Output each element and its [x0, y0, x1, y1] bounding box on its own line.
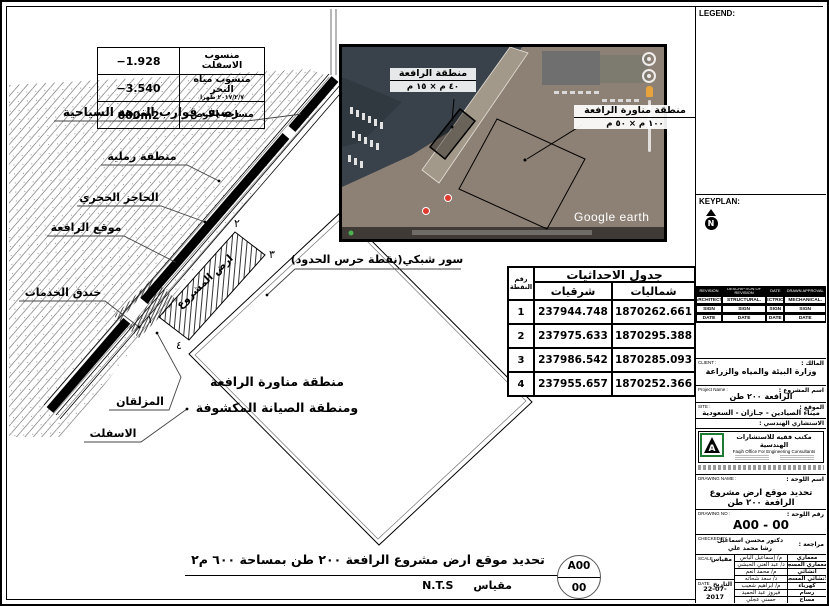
- sheet-number-bubble: A00 00: [557, 555, 601, 599]
- scale-date-column: SCALE مقياس DATE التاريخ 22-07-2017: [696, 555, 735, 603]
- leader-dot: [176, 262, 179, 265]
- discipline-cell: STRUCTURAL.: [722, 296, 766, 304]
- easting-header: شرقيات: [534, 282, 612, 300]
- staff-name: م/ إسماعيل الياس: [735, 555, 787, 562]
- coordinates-table: رقم النقطة جدول الاحداثيات شرقيات شماليا…: [507, 266, 696, 397]
- maneuver-area-label-2: ومنطقة الصيانة المكشوفة: [196, 400, 358, 415]
- move-control[interactable]: [642, 69, 656, 83]
- look-control[interactable]: [642, 52, 656, 66]
- staff-role: معماري: [788, 555, 826, 562]
- staff-name: د/ عبد الغني الحبشي: [735, 562, 787, 569]
- asphalt-label: الاسفلت: [90, 427, 137, 440]
- date-cell: DATE: [696, 314, 722, 322]
- northing-value: 1870252.366: [612, 372, 695, 396]
- revision-notes-box: [696, 323, 826, 359]
- revision-col-header: DRAWN APPROVAL: [784, 287, 826, 295]
- revision-col-header: DATE: [766, 287, 784, 295]
- corner-point-1: ١: [147, 313, 153, 326]
- table-row: −3.540 منسوب مياه البحر ٢٠١٧/٢/٧ ظهرا: [98, 75, 265, 102]
- easting-value: 237975.633: [534, 324, 612, 348]
- maneuver-area-callout-dims: ١٠٠ م × ٥٠ م: [574, 118, 696, 129]
- client-label-en: CLIENT :: [698, 360, 716, 365]
- discipline-cell: ELECTRICAL.: [766, 296, 784, 304]
- legend-box: LEGEND:: [696, 7, 826, 195]
- staff-role: انشائي: [788, 569, 826, 576]
- scale-label: مقياس: [473, 579, 512, 592]
- drawing-no-section: DRAWING NO : رقم اللوحة : A00 - 00: [696, 510, 826, 535]
- scale-value: N.T.S: [422, 579, 453, 592]
- keyplan-box: KEYPLAN: N: [696, 195, 826, 288]
- land-area-value: 600m2: [98, 102, 180, 129]
- leader-dot: [218, 180, 221, 183]
- staff-name: م/ ابراهيم شعيب: [735, 583, 787, 590]
- consultant-name-ar: مكتب فقيه للاستشارات الهندسية: [725, 432, 823, 449]
- point-number: 4: [508, 372, 534, 396]
- staff-name: فيروز عبد الحميد: [735, 590, 787, 597]
- discipline-cell: MECHANICAL.: [784, 296, 826, 304]
- consultant-section: A مكتب فقيه للاستشارات الهندسية Faqih Of…: [696, 429, 826, 475]
- leader-dot: [204, 221, 207, 224]
- sign-cell: SIGN: [784, 305, 826, 313]
- crane-area-callout-dims: ٤٠ م × ١٥ م: [390, 81, 476, 92]
- maneuver-area-callout: منطقة مناورة الرافعة ١٠٠ م × ٥٠ م: [574, 105, 696, 129]
- point-number: 3: [508, 348, 534, 372]
- status-bar-text-blur: [412, 230, 592, 235]
- leader-dot: [156, 332, 159, 335]
- leader-dot: [301, 113, 304, 116]
- drawing-sheet: ارض المشروع ٢ ٣ ١ ٤ منطقة مناورة الرافعة…: [0, 0, 829, 606]
- client-section: CLIENT : المالك : وزارة البيئة والمياه و…: [696, 359, 826, 386]
- consultant-logo-box: A مكتب فقيه للاستشارات الهندسية Faqih Of…: [698, 431, 824, 463]
- leader-dot: [138, 326, 141, 329]
- consultant-label-section: الاستشاري الهندسي :: [696, 419, 826, 429]
- scale-label-ar: مقياس: [711, 556, 732, 563]
- drawing-name-label-ar: اسم اللوحة :: [786, 476, 824, 483]
- leader-dot: [266, 294, 269, 297]
- drawing-name-section: DRAWING NAME : اسم اللوحة : تحديد موقع ا…: [696, 475, 826, 510]
- staff-role: مساح: [788, 597, 826, 603]
- checker-name: دكتور محسن اسماعيل: [696, 537, 804, 545]
- title-block-panel: LEGEND: KEYPLAN: N REVISION DESCRIPTION …: [695, 7, 826, 603]
- band-gap: [286, 129, 292, 136]
- sign-cell: SIGN: [722, 305, 766, 313]
- date-cell: DATE: [784, 314, 826, 322]
- table-row: 600m2 مساحة الارض: [98, 102, 265, 129]
- site-value: ميناء الصيادين - جـازان - السعودية: [696, 409, 826, 417]
- asphalt-level-value: −1.928: [98, 48, 180, 75]
- date-cell: DATE التاريخ 22-07-2017: [696, 580, 734, 604]
- fence-label: سور شبكي(نقطة حرس الحدود): [291, 253, 463, 266]
- placemark-icon[interactable]: [444, 194, 452, 202]
- staff-role: المعماري المسجل: [788, 562, 826, 569]
- date-cell: DATE: [766, 314, 784, 322]
- corner-point-3: ٣: [269, 248, 275, 261]
- slipway-label: المزلقان: [116, 395, 164, 408]
- project-name: الرافعة ٢٠٠ طن: [696, 392, 826, 401]
- google-earth-watermark: Google earth: [574, 210, 649, 224]
- maneuver-area-callout-title: منطقة مناورة الرافعة: [574, 105, 696, 118]
- keyplan-label: KEYPLAN:: [696, 195, 826, 206]
- point-header-line2: النقطة: [510, 284, 532, 291]
- discipline-cell: ARCHITECT.: [696, 296, 722, 304]
- stone-barrier-label: الحاجز الحجري: [79, 191, 158, 204]
- northing-header: شماليات: [612, 282, 695, 300]
- staff-roles-column: معماري المعماري المسجل انشائي الانشائي ا…: [787, 555, 826, 603]
- client-label-ar: المالك :: [801, 360, 824, 367]
- sign-row: SIGN SIGN SIGN SIGN: [696, 305, 826, 314]
- sign-cell: SIGN: [696, 305, 722, 313]
- staff-names-column: م/ إسماعيل الياس د/ عبد الغني الحبشي م/ …: [735, 555, 787, 603]
- leader-dot: [186, 408, 189, 411]
- site-section: SITE : الموقع : ميناء الصيادين - جـازان …: [696, 403, 826, 419]
- checked-by-section: CHECKED BY مراجعة : دكتور محسن اسماعيل ر…: [696, 535, 826, 555]
- staff-section: SCALE مقياس DATE التاريخ 22-07-2017 م/ إ…: [696, 555, 826, 603]
- corner-point-4: ٤: [176, 339, 182, 352]
- coords-table-title: جدول الاحداثيات: [534, 267, 695, 282]
- satellite-image: Google earth: [339, 44, 667, 242]
- sandy-area-label: منطقة رملية: [107, 150, 176, 163]
- services-trench-label: خندق الخدمات: [25, 286, 102, 299]
- easting-value: 237955.657: [534, 372, 612, 396]
- drawing-name-value: تحديد موقع ارض مشروع الرافعة ٢٠٠ طن: [696, 488, 826, 508]
- staff-name: حسني عجلي: [735, 597, 787, 603]
- maneuver-area-label-1: منطقة مناورة الرافعة: [210, 374, 344, 389]
- leader-dot: [524, 159, 527, 162]
- svg-text:A: A: [709, 444, 716, 454]
- north-letter: N: [705, 217, 718, 230]
- project-section: Project Name : اسم المشروع : الرافعة ٢٠٠…: [696, 386, 826, 403]
- corner-point-2: ٢: [234, 217, 240, 230]
- table-row: −1.928 منسوب الاسفلت: [98, 48, 265, 75]
- point-number-header: رقم النقطة: [508, 267, 534, 300]
- north-arrow-icon: N: [704, 209, 718, 230]
- pegman-icon[interactable]: [646, 86, 653, 97]
- sea-level-label: منسوب مياه البحر ٢٠١٧/٢/٧ ظهرا: [180, 75, 265, 102]
- buildings: [542, 51, 600, 85]
- point-number: 1: [508, 300, 534, 324]
- date-cell: DATE: [722, 314, 766, 322]
- drawing-no-label-en: DRAWING NO :: [698, 511, 730, 516]
- easting-value: 237944.748: [534, 300, 612, 324]
- leader-dot: [451, 126, 454, 129]
- sea-level-date: ٢٠١٧/٢/٧ ظهرا: [183, 95, 261, 101]
- sheet-number-bottom: 00: [558, 578, 600, 599]
- levels-info-table: −1.928 منسوب الاسفلت −3.540 منسوب مياه ا…: [97, 47, 265, 129]
- staff-name: د/ سعد شحاته: [735, 576, 787, 583]
- point-number: 2: [508, 324, 534, 348]
- staff-role: رسام: [788, 590, 826, 597]
- consultant-name-en: Faqih Office For Engineering Consultants: [725, 449, 823, 454]
- scale-cell: SCALE مقياس: [696, 555, 734, 580]
- checker-name: رشا محمد علي: [696, 545, 804, 553]
- drawing-title: تحديد موقع ارض مشروع الرافعة ٢٠٠ طن بمسا…: [182, 552, 554, 567]
- status-dot: [349, 231, 354, 236]
- consultant-branch-strip: [698, 465, 824, 470]
- map-nav-controls[interactable]: [640, 52, 658, 152]
- scale-note: N.T.S مقياس: [374, 579, 560, 592]
- staff-role: كهرباء: [788, 583, 826, 590]
- sea-level-label-text: منسوب مياه البحر: [193, 74, 250, 95]
- drawing-no-value: A00 - 00: [696, 518, 826, 532]
- checked-by-names: دكتور محسن اسماعيل رشا محمد علي: [696, 537, 804, 553]
- crane-area-callout-title: منطقة الرافعة: [390, 68, 476, 81]
- sign-cell: SIGN: [766, 305, 784, 313]
- staff-role: الانشائي المسجل: [788, 576, 826, 583]
- asphalt-level-label: منسوب الاسفلت: [180, 48, 265, 75]
- consultant-label: الاستشاري الهندسي :: [759, 420, 824, 427]
- northing-value: 1870285.093: [612, 348, 695, 372]
- date-value: 22-07-2017: [696, 585, 734, 601]
- consultant-logo-icon: A: [700, 433, 724, 457]
- title-underline: [185, 575, 599, 576]
- crane-location-label: موقع الرافعة: [51, 221, 122, 234]
- easting-value: 237986.542: [534, 348, 612, 372]
- land-area-label: مساحة الارض: [180, 102, 265, 129]
- drawing-no-label-ar: رقم اللوحة :: [787, 511, 824, 518]
- placemark-icon[interactable]: [422, 207, 430, 215]
- sheet-number-top: A00: [558, 556, 600, 578]
- drawing-name-label-en: DRAWING NAME :: [698, 476, 736, 481]
- discipline-row: ARCHITECT. STRUCTURAL. ELECTRICAL. MECHA…: [696, 296, 826, 305]
- northing-value: 1870295.388: [612, 324, 695, 348]
- staff-name: م/ محمد أنعم: [735, 569, 787, 576]
- northing-value: 1870262.661: [612, 300, 695, 324]
- crane-area-callout: منطقة الرافعة ٤٠ م × ١٥ م: [390, 68, 476, 92]
- revision-header-row: REVISION DESCRIPTION OF REVISION DATE DR…: [696, 287, 826, 296]
- sea-level-value: −3.540: [98, 75, 180, 102]
- date-row: DATE DATE DATE DATE: [696, 314, 826, 323]
- legend-label: LEGEND:: [696, 7, 826, 18]
- consultant-address-lines: [725, 454, 823, 461]
- revision-col-header: DESCRIPTION OF REVISION: [722, 287, 766, 295]
- revision-col-header: REVISION: [696, 287, 722, 295]
- client-name: وزارة البيئة والمياه والزراعة: [696, 367, 826, 376]
